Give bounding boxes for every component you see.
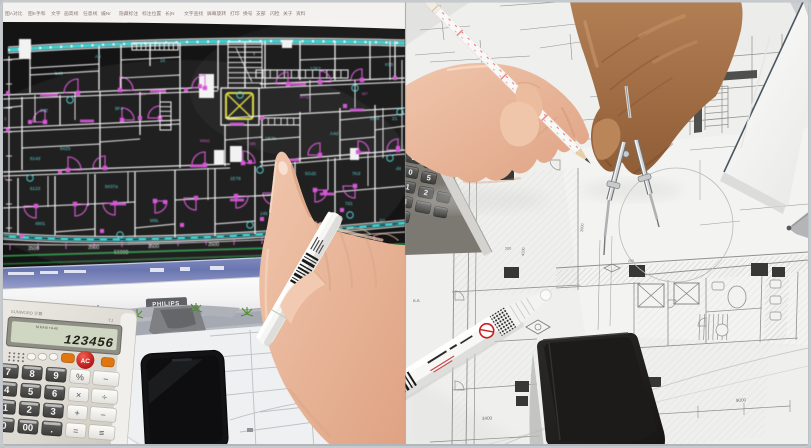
svg-text:d4: d4	[396, 166, 402, 171]
svg-text:文字查找: 文字查找	[184, 10, 203, 17]
svg-text:7d1: 7d1	[345, 201, 353, 206]
svg-text:TJ: TJ	[108, 318, 113, 323]
svg-text:8: 8	[29, 369, 35, 380]
svg-text:×: ×	[76, 390, 82, 400]
svg-text:=: =	[73, 426, 79, 436]
svg-text:4901: 4901	[35, 221, 46, 226]
svg-text:屏幕旋转: 屏幕旋转	[207, 10, 226, 17]
svg-text:换号: 换号	[243, 10, 253, 17]
svg-text:B-B: B-B	[413, 298, 420, 303]
svg-text:任意线: 任意线	[83, 10, 98, 17]
svg-text:9000: 9000	[736, 397, 747, 403]
svg-text:资料: 资料	[296, 10, 306, 17]
svg-text:5Gd2: 5Gd2	[305, 171, 317, 176]
svg-text:−: −	[100, 410, 106, 420]
svg-text:+: +	[74, 408, 80, 418]
svg-text:84Z5: 84Z5	[60, 146, 71, 151]
svg-text:M5d1: M5d1	[200, 138, 211, 143]
svg-text:84Z: 84Z	[40, 108, 48, 113]
svg-text:K55: K55	[385, 62, 394, 67]
svg-text:b2: b2	[380, 218, 386, 223]
svg-text:闪检: 闪检	[270, 10, 280, 17]
svg-text:3500: 3500	[208, 242, 219, 248]
svg-text:3500: 3500	[148, 244, 159, 250]
svg-text:14b: 14b	[260, 211, 268, 216]
svg-text:支部: 支部	[256, 10, 266, 17]
svg-text:图K手和: 图K手和	[28, 10, 46, 17]
svg-text:≡: ≡	[99, 428, 105, 438]
svg-text:9F4: 9F4	[115, 106, 123, 111]
svg-text:图A对比: 图A对比	[5, 10, 23, 17]
svg-text:17K2: 17K2	[310, 66, 321, 71]
svg-text:关于: 关于	[283, 10, 293, 17]
svg-text:÷: ÷	[102, 392, 108, 402]
svg-text:7Kd: 7Kd	[352, 171, 361, 176]
svg-text:7: 7	[5, 367, 11, 378]
svg-text:2000: 2000	[580, 223, 585, 232]
svg-text:200: 200	[505, 247, 512, 251]
svg-text:Z1: Z1	[392, 116, 398, 121]
svg-text:长|N: 长|N	[165, 10, 175, 17]
svg-text:M7Q1: M7Q1	[135, 91, 147, 96]
svg-text:%: %	[76, 372, 85, 383]
svg-text:3: 3	[50, 406, 56, 417]
svg-text:6: 6	[51, 388, 57, 399]
svg-text:隐藏标注: 隐藏标注	[119, 10, 138, 17]
svg-text:M7: M7	[362, 91, 368, 96]
svg-text:标注位置: 标注位置	[142, 10, 161, 17]
svg-text:4200: 4200	[521, 247, 526, 256]
svg-text:编Nr: 编Nr	[101, 10, 111, 17]
svg-text:AC: AC	[80, 358, 90, 366]
svg-text:8437a: 8437a	[105, 184, 118, 189]
svg-text:00: 00	[22, 422, 33, 434]
svg-text:2: 2	[26, 404, 32, 415]
svg-text:−: −	[103, 374, 109, 384]
svg-text:文字: 文字	[51, 10, 61, 17]
svg-text:200: 200	[628, 259, 634, 263]
svg-text:A4d: A4d	[330, 131, 339, 136]
svg-text:3500: 3500	[28, 246, 39, 252]
svg-text:1K: 1K	[160, 58, 167, 63]
svg-text:1E78: 1E78	[230, 176, 241, 181]
svg-text:打印: 打印	[230, 10, 240, 17]
svg-text:M5: M5	[250, 141, 256, 146]
svg-text:画高线: 画高线	[64, 10, 79, 17]
svg-text:M9L: M9L	[150, 218, 159, 223]
svg-text:A8: A8	[95, 54, 101, 59]
svg-text:3400: 3400	[482, 415, 493, 421]
svg-text:6123: 6123	[30, 186, 41, 191]
svg-text:3500: 3500	[88, 245, 99, 251]
svg-text:9: 9	[53, 370, 59, 381]
svg-text:614d: 614d	[30, 156, 41, 161]
